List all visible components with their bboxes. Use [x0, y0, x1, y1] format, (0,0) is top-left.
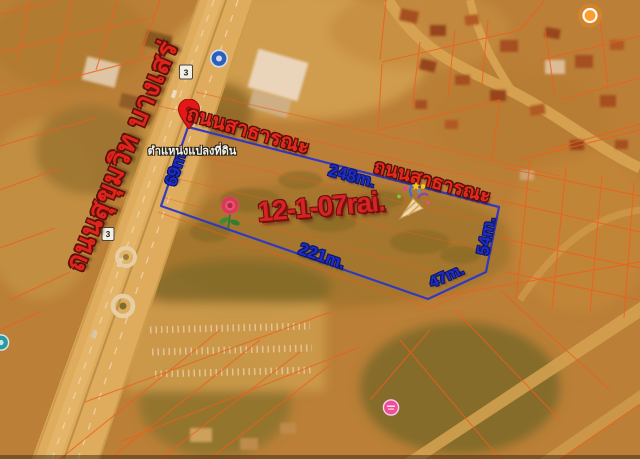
aerial-map: 3 3 ถนนสุขุมวิท บางเสร่ ถนนสาธารณะ ถนนสา… [0, 0, 640, 459]
route-shield-upper: 3 [179, 65, 193, 80]
route-number: 3 [184, 67, 189, 77]
poi-blue-circle-icon [210, 49, 229, 73]
poi-pink-badge-icon [382, 399, 400, 422]
party-popper-icon [392, 181, 432, 226]
pin-caption-label: ตำแหน่งแปลงที่ดิน [148, 147, 237, 158]
poi-glow-marker-icon [577, 3, 603, 34]
poi-teal-circle-icon [0, 334, 10, 357]
route-number: 3 [106, 230, 110, 239]
rose-icon [214, 195, 246, 236]
